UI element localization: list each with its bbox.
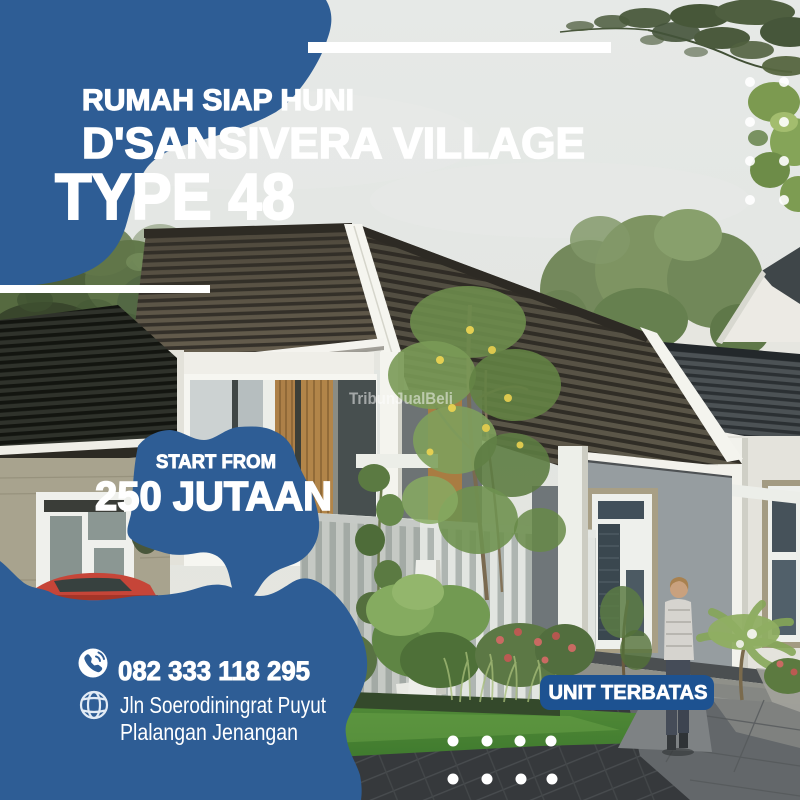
svg-text:082 333 118 295: 082 333 118 295 — [118, 656, 310, 686]
svg-text:TribunJualBeli: TribunJualBeli — [349, 389, 453, 408]
svg-text:RUMAH SIAP HUNI: RUMAH SIAP HUNI — [82, 84, 354, 117]
svg-text:UNIT TERBATAS: UNIT TERBATAS — [549, 682, 708, 704]
svg-text:Jln Soerodiningrat Puyut: Jln Soerodiningrat Puyut — [120, 692, 326, 718]
svg-text:TYPE 48: TYPE 48 — [55, 160, 295, 233]
svg-text:START FROM: START FROM — [156, 452, 276, 473]
svg-text:Plalangan Jenangan: Plalangan Jenangan — [120, 719, 298, 745]
svg-text:250 JUTAAN: 250 JUTAAN — [95, 473, 332, 519]
